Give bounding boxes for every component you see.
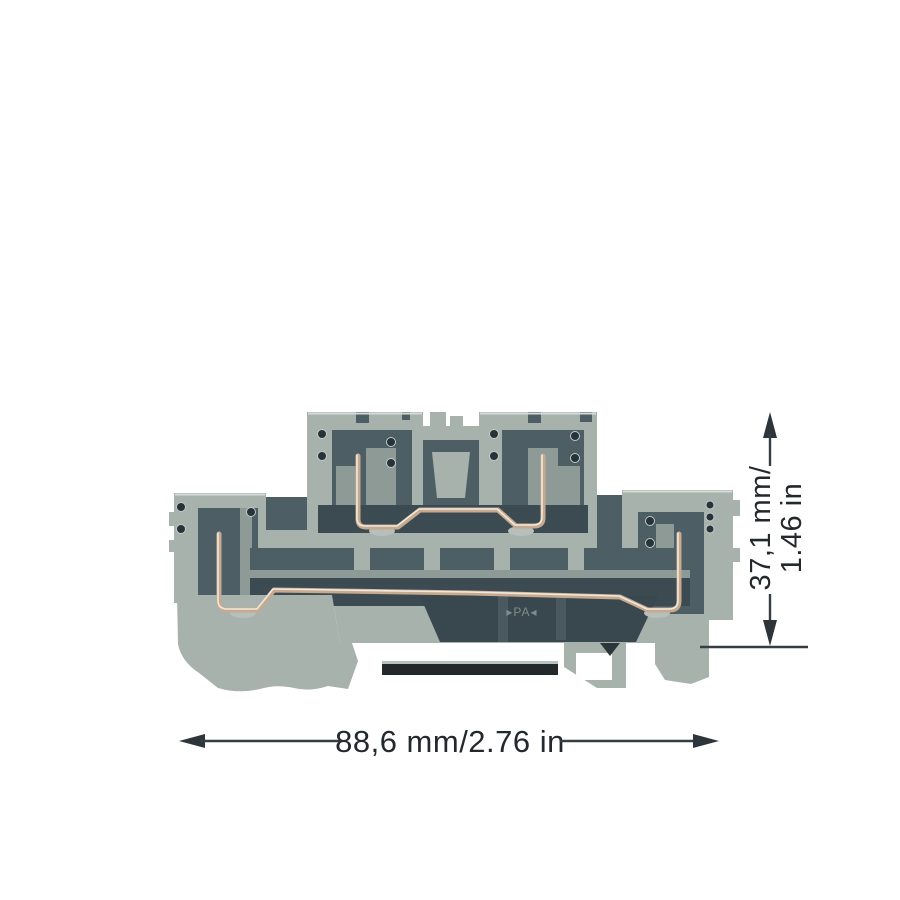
height-dimension-label-line2: 1.46 in — [776, 483, 808, 574]
din-rail-foot-right — [655, 643, 709, 684]
lower-left-clamp-cavity — [198, 508, 258, 604]
left-edge-bump — [169, 512, 175, 526]
dimension-diagram: ▸PA◂ — [0, 0, 900, 900]
arrow-down-icon — [763, 620, 777, 646]
din-rail-bar — [382, 664, 558, 675]
din-rail-slot — [382, 661, 558, 675]
product-image-canvas: ▸PA◂ — [0, 0, 900, 900]
width-dimension-label: 88,6 mm/2.76 in — [335, 724, 565, 759]
upper-left-clamp-cavity — [332, 430, 412, 508]
right-edge-bump — [733, 500, 740, 516]
height-dimension-label-line1: 37,1 mm/ — [745, 465, 777, 590]
center-bridge-cavity — [423, 440, 479, 510]
left-edge-bump — [169, 540, 175, 552]
din-rail-foot-left — [177, 595, 358, 691]
center-tab — [430, 412, 446, 428]
pa-marking: ▸PA◂ — [506, 605, 537, 619]
latch-slot — [576, 653, 612, 680]
arrow-right-icon — [693, 734, 719, 748]
width-dimension: 88,6 mm/2.76 in — [179, 724, 719, 759]
center-tab — [450, 416, 463, 428]
bottom-recess: ▸PA◂ — [420, 596, 658, 642]
terminal-block-illustration: ▸PA◂ — [169, 412, 740, 691]
right-recess-gap — [597, 495, 622, 548]
right-edge-bump — [733, 548, 740, 562]
